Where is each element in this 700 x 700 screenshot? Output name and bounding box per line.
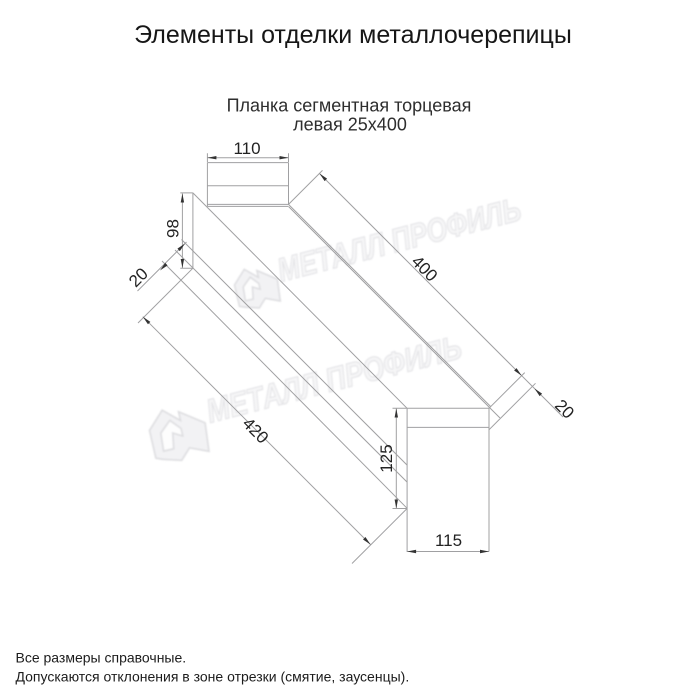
- svg-text:98: 98: [164, 219, 183, 238]
- svg-text:Допускаются отклонения в зоне: Допускаются отклонения в зоне отрезки (с…: [16, 669, 410, 685]
- svg-text:125: 125: [377, 444, 396, 472]
- svg-text:400: 400: [408, 252, 441, 285]
- svg-text:Планка сегментная торцевая: Планка сегментная торцевая: [227, 96, 472, 116]
- svg-text:20: 20: [125, 264, 152, 291]
- svg-text:МЕТАЛЛ ПРОФИЛЬ: МЕТАЛЛ ПРОФИЛЬ: [273, 190, 524, 288]
- svg-text:левая 25х400: левая 25х400: [293, 115, 407, 135]
- svg-text:Все размеры справочные.: Все размеры справочные.: [16, 650, 187, 666]
- svg-text:20: 20: [551, 396, 578, 423]
- svg-text:Элементы отделки металлочерепи: Элементы отделки металлочерепицы: [134, 21, 572, 49]
- svg-text:115: 115: [435, 531, 462, 550]
- svg-text:110: 110: [233, 139, 260, 158]
